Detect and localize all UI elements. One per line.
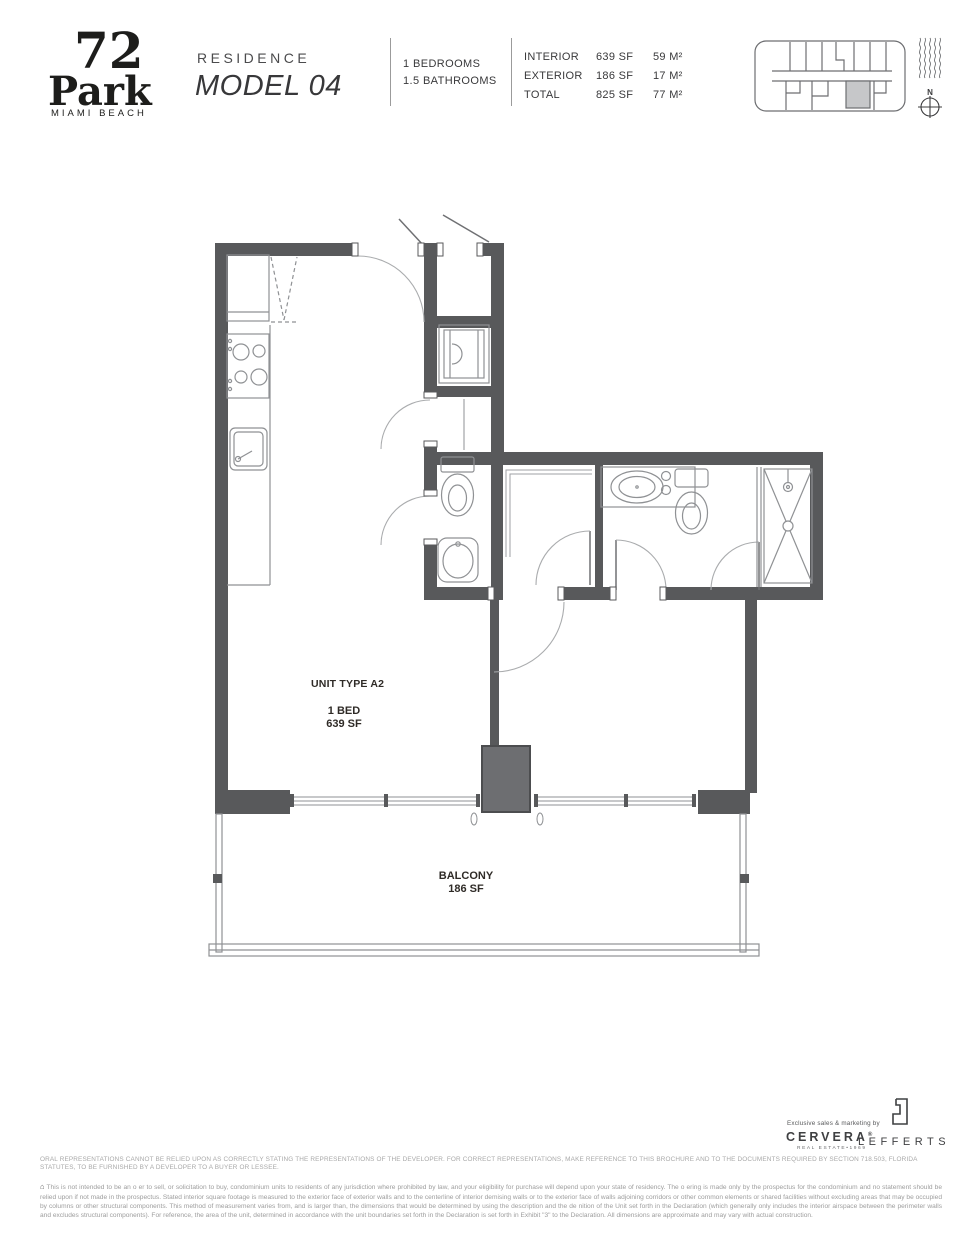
door-leaves	[399, 215, 759, 590]
cervera-wordmark: CERVERA	[786, 1130, 868, 1144]
powder-door-arc	[381, 496, 430, 545]
structural-column	[482, 746, 530, 812]
entry-door-leaf	[443, 215, 489, 242]
shower-icon	[757, 467, 812, 587]
brochure-page: 72 Park MIAMI BEACH RESIDENCE MODEL 04 1…	[0, 0, 978, 1258]
disclaimer-offering-text: This is not intended to be an o er to se…	[40, 1184, 942, 1219]
marketing-note: Exclusive sales & marketing by	[787, 1120, 880, 1127]
stove-icon	[227, 334, 269, 398]
cervera-subtitle: REAL ESTATE•1969	[797, 1146, 867, 1151]
bath-door-arc	[616, 540, 666, 590]
balcony-label: BALCONY	[439, 870, 494, 882]
bedroom-door-arc	[494, 602, 564, 672]
closet-door-arc	[536, 531, 590, 585]
rail-post	[740, 874, 749, 883]
door-jambs	[352, 243, 666, 600]
kitchen-sink-icon	[230, 428, 267, 470]
equal-housing-icon: ⌂	[40, 1182, 45, 1191]
disclaimer-offering: ⌂This is not intended to be an o er to s…	[40, 1182, 942, 1221]
lefferts-wordmark: LEFFERTS	[858, 1136, 950, 1148]
kitchen-fixtures	[227, 255, 299, 585]
lefferts-logo-icon	[890, 1096, 914, 1128]
floor-plan: UNIT TYPE A2 1 BED 639 SF BALCONY 186 SF	[0, 0, 978, 1258]
washer-dryer-icon	[439, 325, 489, 383]
hall-door-leaf	[399, 219, 424, 246]
bed-count-label: 1 BED	[328, 705, 360, 717]
bathroom-fixtures	[601, 467, 812, 587]
balcony-railing	[209, 814, 759, 956]
slider-handles	[471, 813, 543, 825]
balcony-area-label: 186 SF	[448, 883, 484, 895]
disclaimer-legal: ORAL REPRESENTATIONS CANNOT BE RELIED UP…	[40, 1156, 940, 1173]
powder-sink-icon	[438, 538, 478, 582]
unit-area-label: 639 SF	[326, 718, 362, 730]
unit-type-label: UNIT TYPE A2	[311, 678, 384, 690]
fridge-icon	[227, 255, 269, 321]
plan-labels: UNIT TYPE A2 1 BED 639 SF BALCONY 186 SF	[311, 678, 494, 895]
rail-post	[213, 874, 222, 883]
walls	[215, 243, 823, 814]
shower-door-arc	[711, 542, 759, 590]
closet-shelves	[506, 470, 592, 557]
linen-door-arc	[381, 400, 430, 449]
toilet-icon	[441, 457, 474, 516]
bifold-closet-icon	[271, 257, 299, 322]
powder-room-fixtures	[438, 457, 478, 582]
hall-door-arc	[358, 256, 424, 322]
toilet-icon	[675, 469, 708, 534]
